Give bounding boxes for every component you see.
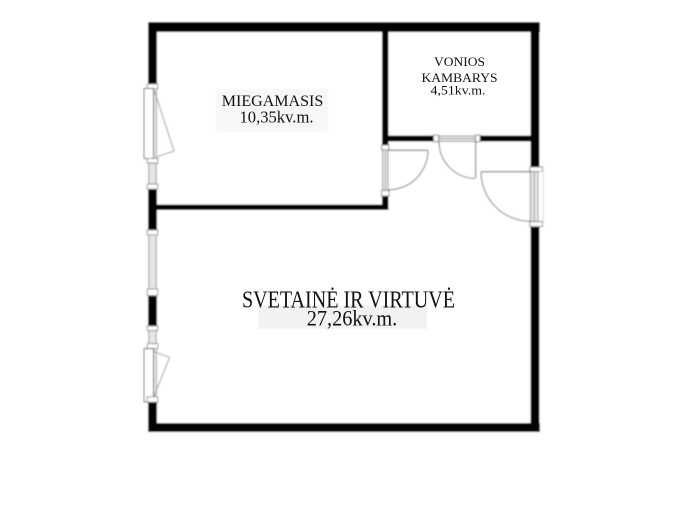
svg-text:10,35kv.m.: 10,35kv.m. bbox=[240, 108, 314, 127]
svg-text:VONIOS: VONIOS bbox=[434, 54, 485, 69]
svg-text:4,51kv.m.: 4,51kv.m. bbox=[431, 83, 486, 98]
svg-text:27,26kv.m.: 27,26kv.m. bbox=[307, 306, 398, 331]
